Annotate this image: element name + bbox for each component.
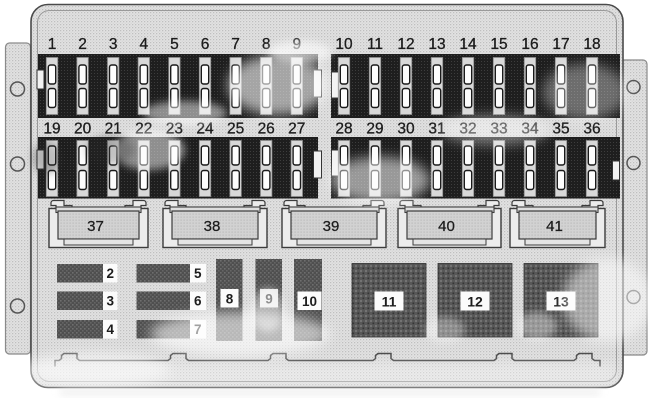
svg-text:12: 12 — [467, 294, 483, 310]
svg-text:15: 15 — [490, 36, 507, 53]
svg-text:38: 38 — [204, 218, 221, 235]
svg-text:19: 19 — [43, 121, 60, 138]
svg-text:40: 40 — [438, 218, 455, 235]
svg-text:3: 3 — [107, 294, 115, 309]
svg-text:10: 10 — [335, 36, 353, 53]
svg-text:5: 5 — [170, 36, 179, 53]
svg-text:35: 35 — [552, 121, 569, 138]
svg-text:20: 20 — [74, 121, 92, 138]
svg-text:6: 6 — [201, 36, 210, 53]
svg-text:2: 2 — [107, 266, 115, 281]
svg-text:10: 10 — [302, 294, 317, 309]
svg-text:14: 14 — [459, 36, 477, 53]
svg-text:8: 8 — [226, 292, 234, 307]
svg-text:39: 39 — [323, 218, 340, 235]
svg-text:13: 13 — [428, 36, 445, 53]
svg-text:17: 17 — [552, 36, 569, 53]
svg-text:2: 2 — [78, 36, 87, 53]
svg-text:26: 26 — [258, 121, 275, 138]
svg-text:29: 29 — [366, 121, 383, 138]
svg-text:1: 1 — [48, 36, 57, 53]
svg-text:25: 25 — [227, 121, 244, 138]
svg-text:28: 28 — [335, 121, 352, 138]
svg-text:6: 6 — [194, 294, 202, 309]
svg-text:11: 11 — [367, 36, 383, 53]
svg-text:5: 5 — [194, 266, 202, 281]
svg-text:11: 11 — [382, 294, 397, 310]
svg-text:27: 27 — [288, 121, 305, 138]
svg-text:16: 16 — [521, 36, 538, 53]
svg-text:4: 4 — [107, 322, 115, 337]
svg-text:18: 18 — [583, 36, 600, 53]
svg-text:41: 41 — [546, 218, 563, 235]
svg-text:21: 21 — [105, 121, 122, 138]
svg-text:7: 7 — [231, 36, 240, 53]
svg-text:30: 30 — [397, 121, 415, 138]
svg-text:4: 4 — [139, 36, 148, 53]
svg-text:3: 3 — [109, 36, 118, 53]
svg-text:36: 36 — [583, 121, 600, 138]
svg-text:12: 12 — [397, 36, 414, 53]
svg-text:37: 37 — [87, 218, 104, 235]
